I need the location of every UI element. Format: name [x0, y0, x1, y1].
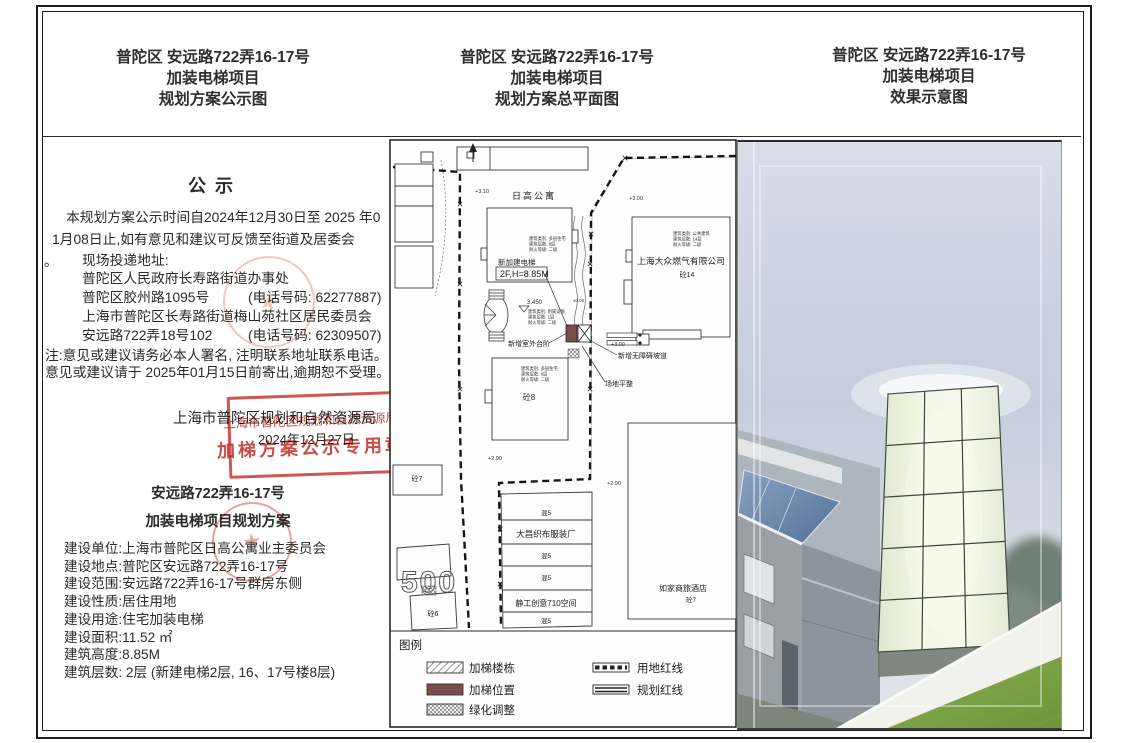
- header-project: 加装电梯项目: [88, 68, 338, 89]
- header-project: 加装电梯项目: [804, 66, 1054, 87]
- detail-row: 建筑高度:8.85M: [64, 646, 394, 664]
- header-sheet-name: 效果示意图: [804, 87, 1054, 108]
- greenery-adjust-patch: [568, 349, 579, 358]
- rectangular-red-stamp: 上海市普陀区规划和自然资源局 加梯方案公示专用章: [227, 391, 396, 479]
- legend-swatch-cross-hatch: [427, 704, 463, 715]
- glass-elevator-tower: [878, 386, 1010, 652]
- notice-title: 公示: [40, 172, 390, 198]
- header-right-panel: 普陀区 安远路722弄16-17号 加装电梯项目 效果示意图: [804, 45, 1054, 108]
- label-factory: 大昌织布服装厂: [516, 529, 576, 539]
- detail-row: 建设性质:居住用地: [64, 593, 394, 611]
- legend-label: 用地红线: [637, 661, 683, 675]
- label-t8: 砼8: [523, 392, 536, 402]
- scanned-notice-sheet: 普陀区 安远路722弄16-17号 加装电梯项目 规划方案公示图 普陀区 安远路…: [0, 0, 1123, 743]
- project-details-list: 建设单位:上海市普陀区日高公寓业主委员会 建设地点:普陀区安远路722弄16-1…: [64, 540, 394, 682]
- label-gas-company: 上海大众燃气有限公司: [637, 255, 725, 266]
- detail-row: 建筑层数: 2层 (新建电梯2层, 16、17号楼8层): [64, 664, 394, 682]
- ramp-symbol: [607, 333, 637, 338]
- label-rigao-apartment: 日高公寓: [512, 190, 556, 201]
- stamp-purpose-line: 加梯方案公示专用章: [217, 431, 407, 464]
- label-grading: 场地平整: [605, 379, 633, 388]
- header-sheet-name: 规划方案总平面图: [432, 89, 682, 110]
- notice-paragraph-line2: 1月08日止,如有意见和建议可反馈至街道及居委会: [52, 228, 355, 248]
- header-left-panel: 普陀区 安远路722弄16-17号 加装电梯项目 规划方案公示图: [88, 47, 338, 110]
- svg-text:±0.00: ±0.00: [573, 298, 585, 303]
- legend-label: 绿化调整: [469, 703, 515, 717]
- svg-text:3.450: 3.450: [527, 300, 543, 306]
- label-gas-struct: 砼14: [680, 270, 695, 279]
- svg-text:+2.90: +2.90: [488, 456, 502, 462]
- svg-text:+3.00: +3.00: [629, 196, 643, 202]
- project-title-line1: 安远路722弄16-17号: [78, 482, 358, 503]
- label-ramp: 新增无障碍坡道: [618, 351, 667, 360]
- label-t7-left: 砼7: [412, 474, 423, 483]
- label-m5: 混5: [541, 616, 552, 625]
- svg-text:+3.10: +3.10: [475, 189, 489, 195]
- legend-label: 规划红线: [637, 683, 683, 697]
- doorway: [782, 640, 798, 712]
- detail-row: 建设单位:上海市普陀区日高公寓业主委员会: [64, 540, 394, 558]
- header-address: 普陀区 安远路722弄16-17号: [88, 47, 338, 68]
- notice-paragraph-line1: 本规划方案公示时间自2024年12月30日至 2025 年0: [66, 206, 380, 226]
- legend-swatch-solid-maroon: [427, 684, 463, 695]
- legend-label: 加梯楼栋: [469, 661, 515, 675]
- detail-row: 建设地点:普陀区安远路722弄16-17号: [64, 558, 394, 576]
- header-sheet-name: 规划方案公示图: [88, 89, 338, 110]
- notice-paragraph-period: 。: [44, 250, 58, 270]
- svg-text:+2.90: +2.90: [607, 481, 621, 487]
- label-hotel-struct: 砼7: [686, 595, 697, 604]
- office2-address: 安远路722弄18号102: [82, 324, 212, 344]
- delivery-address-heading: 现场投递地址:: [82, 249, 169, 269]
- svg-text:+3.00: +3.00: [611, 342, 625, 348]
- header-middle-panel: 普陀区 安远路722弄16-17号 加装电梯项目 规划方案总平面图: [432, 47, 682, 110]
- header-project: 加装电梯项目: [432, 68, 682, 89]
- site-plan-drawing: 日高公寓 新加建电梯 2F,H=8.85M 上海大众燃气有限公司 砼14 新增室…: [389, 134, 737, 728]
- label-new-lift: 新加建电梯: [498, 257, 536, 267]
- rendering-photo-panel: [737, 140, 1062, 730]
- label-m5: 混5: [541, 551, 552, 560]
- seal-star-icon: ★: [255, 285, 283, 318]
- header-address: 普陀区 安远路722弄16-17号: [432, 47, 682, 68]
- greenery-adjust-patch-2: [422, 586, 436, 595]
- svg-text:耐火等级: 二级: 耐火等级: 二级: [528, 319, 557, 326]
- notice-note-line2: 意见或建议请于 2025年01月15日前寄出,逾期恕不受理。: [45, 361, 390, 381]
- detail-row: 建设范围:安远路722弄16-17号群房东侧: [64, 575, 394, 593]
- office1-address: 普陀区胶州路1095号: [82, 286, 209, 306]
- label-creative-space: 静工创意710空间: [515, 598, 576, 608]
- legend-title: 图例: [399, 638, 422, 652]
- public-notice-panel: 公示 本规划方案公示时间自2024年12月30日至 2025 年0 1月08日止…: [40, 140, 390, 738]
- label-t6: 砼6: [428, 609, 439, 618]
- svg-text:耐火等级: 二级: 耐火等级: 二级: [521, 376, 550, 383]
- label-lift-spec: 2F,H=8.85M: [500, 269, 549, 279]
- stamp-authority-line: 上海市普陀区规划和自然资源局: [223, 407, 399, 432]
- detail-row: 建设用途:住宅加装电梯: [64, 611, 394, 629]
- label-outdoor-steps: 新增室外台阶: [508, 339, 550, 348]
- rendering-illustration: [738, 142, 1062, 730]
- label-hotel: 如家商旅酒店: [659, 583, 707, 593]
- header-address: 普陀区 安远路722弄16-17号: [804, 45, 1054, 66]
- legend-swatch-diagonal-hatch: [427, 662, 463, 673]
- label-m5: 混5: [541, 573, 552, 582]
- legend-swatch-double-line: [593, 685, 629, 694]
- legend-label: 加梯位置: [469, 683, 515, 697]
- svg-text:耐火等级: 二级: 耐火等级: 二级: [529, 246, 558, 253]
- label-m5: 混5: [541, 508, 552, 517]
- svg-text:耐火等级: 二级: 耐火等级: 二级: [673, 241, 702, 248]
- detail-row: 建设面积:11.52 ㎡: [64, 629, 394, 647]
